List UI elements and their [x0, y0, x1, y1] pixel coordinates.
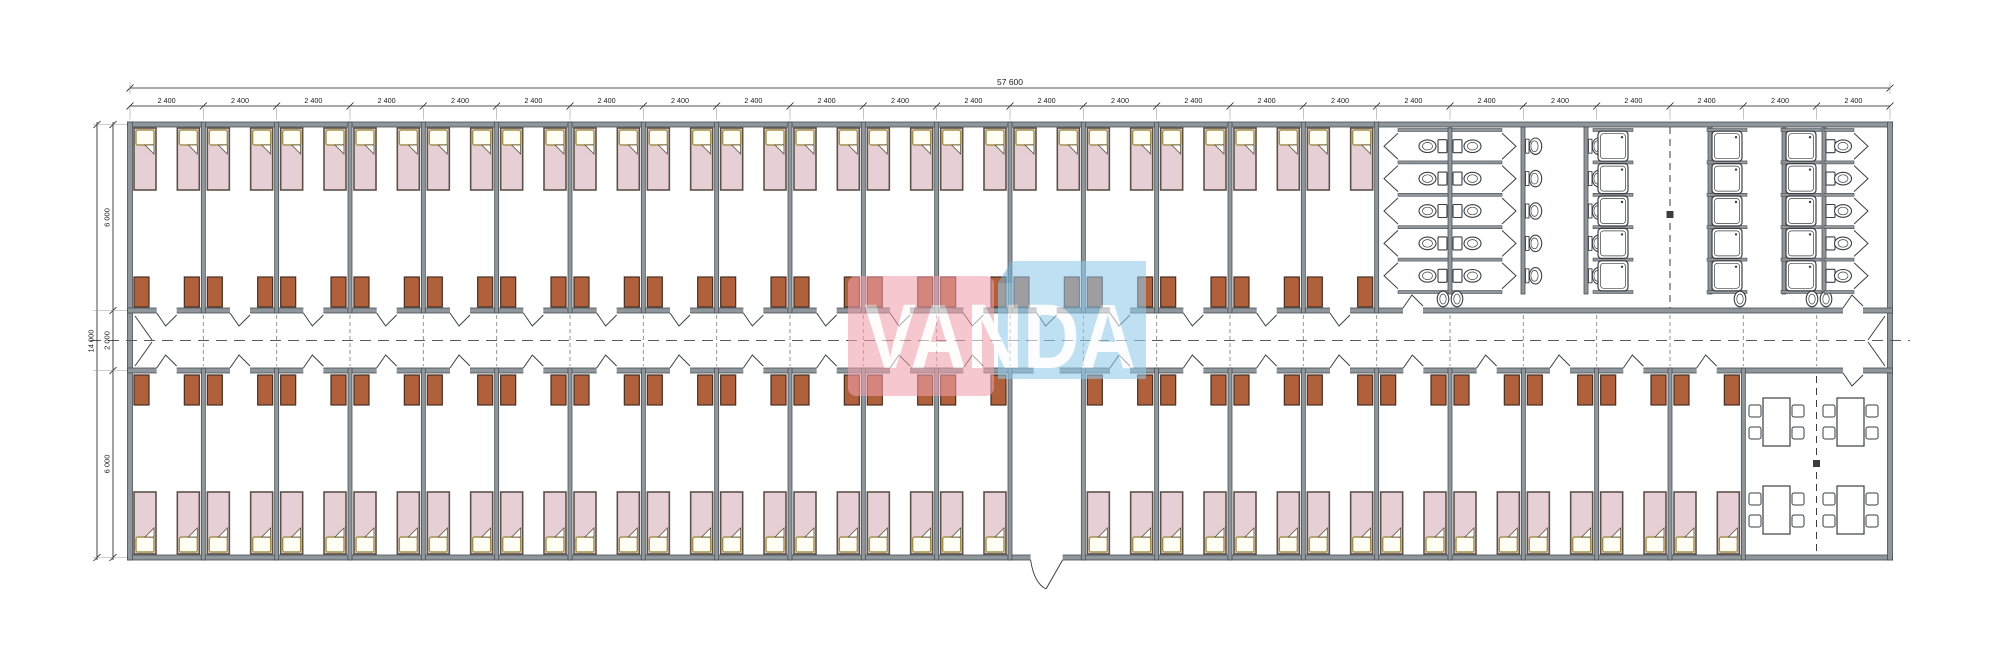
- door-opening: [1550, 368, 1570, 374]
- dimension-label: 2 400: [1038, 96, 1056, 105]
- wardrobe: [281, 375, 296, 405]
- wardrobe: [794, 277, 809, 307]
- bed: [134, 492, 156, 554]
- bed: [1381, 492, 1403, 554]
- wall: [201, 122, 205, 313]
- bed: [794, 492, 816, 554]
- wall: [1668, 368, 1672, 560]
- bed: [281, 492, 303, 554]
- bed: [354, 492, 376, 554]
- door-leaf: [1403, 295, 1423, 308]
- wardrobe: [1161, 277, 1176, 307]
- door-opening: [1183, 368, 1203, 374]
- entrance-door-leaf: [1046, 560, 1063, 589]
- entrance-opening: [1031, 555, 1063, 561]
- wall: [1822, 127, 1826, 294]
- bed: [1131, 128, 1153, 190]
- door-opening: [1843, 368, 1863, 374]
- table: [1837, 486, 1864, 534]
- right-toilet-column: [1824, 129, 1868, 294]
- bed: [1717, 492, 1739, 554]
- wardrobe: [184, 277, 199, 307]
- bed: [617, 128, 639, 190]
- bed: [177, 128, 199, 190]
- wardrobe: [647, 375, 662, 405]
- dimension-label: 2 400: [964, 96, 982, 105]
- bed: [1087, 128, 1109, 190]
- door-leaf: [1550, 355, 1570, 368]
- wardrobe: [354, 277, 369, 307]
- bed: [647, 128, 669, 190]
- door-opening: [157, 368, 177, 374]
- wardrobe: [1307, 375, 1322, 405]
- bed: [794, 128, 816, 190]
- dimension-label: 2 400: [1111, 96, 1129, 105]
- chair: [1823, 515, 1835, 527]
- door-leaf: [1868, 316, 1885, 340]
- door-opening: [670, 368, 690, 374]
- wardrobe: [647, 277, 662, 307]
- bed: [691, 492, 713, 554]
- bed: [1087, 492, 1109, 554]
- bed: [281, 128, 303, 190]
- bed: [1277, 492, 1299, 554]
- bed: [1277, 128, 1299, 190]
- bed: [1351, 492, 1373, 554]
- door-leaf: [303, 355, 323, 368]
- chair: [1823, 493, 1835, 505]
- table: [1837, 398, 1864, 446]
- watermark-text: VANDA: [864, 286, 1136, 388]
- wall: [421, 122, 425, 313]
- bed: [324, 128, 346, 190]
- wardrobe: [331, 277, 346, 307]
- wall: [1375, 122, 1379, 313]
- wardrobe: [258, 375, 273, 405]
- chair: [1866, 427, 1878, 439]
- wardrobe: [207, 277, 222, 307]
- dimension-label: 2 400: [891, 96, 909, 105]
- section-marker: [1813, 460, 1820, 467]
- dimension-label: 14 000: [87, 330, 96, 353]
- wardrobe: [1358, 277, 1373, 307]
- wardrobe: [1724, 375, 1739, 405]
- door-leaf: [1183, 313, 1203, 326]
- bed: [207, 128, 229, 190]
- wall: [1448, 128, 1452, 294]
- door-leaf: [1330, 355, 1350, 368]
- floor-plan-svg: 57 6002 4002 4002 4002 4002 4002 4002 40…: [0, 0, 2000, 654]
- wall: [421, 368, 425, 560]
- dimension-label: 2 400: [1698, 96, 1716, 105]
- wall: [1741, 368, 1745, 560]
- wardrobe: [404, 375, 419, 405]
- wardrobe: [354, 375, 369, 405]
- door-leaf: [157, 313, 177, 326]
- dimension-label: 2 400: [158, 96, 176, 105]
- door-opening: [597, 368, 617, 374]
- wall: [1155, 122, 1159, 313]
- door-opening: [303, 308, 323, 314]
- bed: [1497, 492, 1519, 554]
- dining-table-group: [1823, 486, 1878, 534]
- bed: [1234, 492, 1256, 554]
- chair: [1792, 493, 1804, 505]
- dimension-label: 2 400: [1624, 96, 1642, 105]
- door-opening: [1330, 308, 1350, 314]
- bed: [1204, 492, 1226, 554]
- door-leaf: [1697, 355, 1717, 368]
- door-leaf: [303, 313, 323, 326]
- chair: [1823, 405, 1835, 417]
- bed: [1204, 128, 1226, 190]
- entrance-door-swing: [1031, 560, 1046, 589]
- wardrobe: [1234, 375, 1249, 405]
- dining-table-group: [1749, 486, 1804, 534]
- chair: [1792, 405, 1804, 417]
- chair: [1792, 427, 1804, 439]
- bed: [1307, 492, 1329, 554]
- wardrobe: [207, 375, 222, 405]
- door-opening: [523, 368, 543, 374]
- floor-plan-canvas: 57 6002 4002 4002 4002 4002 4002 4002 40…: [0, 0, 2000, 654]
- wardrobe: [574, 375, 589, 405]
- door-leaf: [670, 355, 690, 368]
- wardrobe: [1358, 375, 1373, 405]
- door-leaf: [743, 355, 763, 368]
- bed: [721, 492, 743, 554]
- dimension-label: 2 400: [524, 96, 542, 105]
- wall: [495, 368, 499, 560]
- wardrobe: [551, 277, 566, 307]
- dimension-label: 2 400: [1844, 96, 1862, 105]
- door-opening: [1623, 368, 1643, 374]
- wardrobe: [184, 375, 199, 405]
- door-leaf: [743, 313, 763, 326]
- bed: [1307, 128, 1329, 190]
- wall: [935, 368, 939, 560]
- wardrobe: [698, 375, 713, 405]
- door-opening: [1403, 308, 1423, 314]
- door-opening: [157, 308, 177, 314]
- dining-table-group: [1823, 398, 1878, 446]
- dimension-label: 2 400: [1478, 96, 1496, 105]
- wall: [788, 368, 792, 560]
- door-opening: [377, 368, 397, 374]
- door-opening: [1403, 368, 1423, 374]
- wall: [1228, 122, 1232, 313]
- bed: [177, 492, 199, 554]
- wardrobe: [404, 277, 419, 307]
- wall: [495, 122, 499, 313]
- bed: [207, 492, 229, 554]
- bed: [544, 492, 566, 554]
- washbasin-columns: [1526, 138, 1605, 284]
- wardrobe: [427, 277, 442, 307]
- door-leaf: [1257, 313, 1277, 326]
- shower-column: [1781, 129, 1821, 294]
- bed: [574, 128, 596, 190]
- wall: [641, 122, 645, 313]
- wall: [201, 368, 205, 560]
- door-opening: [450, 308, 470, 314]
- bed: [1527, 492, 1549, 554]
- dimension-label: 2 400: [671, 96, 689, 105]
- wardrobe: [551, 375, 566, 405]
- bed: [471, 128, 493, 190]
- wall: [1448, 368, 1452, 560]
- wardrobe: [1527, 375, 1542, 405]
- wardrobe: [1601, 375, 1616, 405]
- door-leaf: [1843, 295, 1863, 308]
- chair: [1749, 405, 1761, 417]
- dimension-label: 2 400: [744, 96, 762, 105]
- bed: [984, 128, 1006, 190]
- dimension-label: 2 400: [1771, 96, 1789, 105]
- bed: [1234, 128, 1256, 190]
- door-leaf: [230, 313, 250, 326]
- bed: [1161, 492, 1183, 554]
- bed: [427, 128, 449, 190]
- dimension-label: 6 000: [103, 455, 112, 474]
- wardrobe: [1161, 375, 1176, 405]
- bed: [941, 128, 963, 190]
- chair: [1749, 515, 1761, 527]
- wardrobe: [624, 375, 639, 405]
- bed: [1454, 492, 1476, 554]
- door-opening: [597, 308, 617, 314]
- wardrobe: [134, 375, 149, 405]
- chair: [1749, 427, 1761, 439]
- door-leaf: [597, 355, 617, 368]
- wall: [348, 368, 352, 560]
- dimension-label: 2 400: [1258, 96, 1276, 105]
- wall: [1155, 368, 1159, 560]
- dimension-label: 6 000: [103, 208, 112, 227]
- bed: [1014, 128, 1036, 190]
- dimension-label: 2 400: [378, 96, 396, 105]
- dimension-label: 2 400: [818, 96, 836, 105]
- section-marker: [1667, 211, 1674, 218]
- dining-table-group: [1749, 398, 1804, 446]
- door-leaf: [1183, 355, 1203, 368]
- wardrobe: [134, 277, 149, 307]
- door-opening: [230, 368, 250, 374]
- bed: [1424, 492, 1446, 554]
- dimension-label: 2 400: [451, 96, 469, 105]
- bed: [501, 492, 523, 554]
- wardrobe: [1307, 277, 1322, 307]
- bed: [1571, 492, 1593, 554]
- wardrobe: [721, 277, 736, 307]
- door-opening: [1697, 368, 1717, 374]
- wall: [1301, 122, 1305, 313]
- wall: [788, 122, 792, 313]
- door-leaf: [230, 355, 250, 368]
- chair: [1866, 515, 1878, 527]
- wardrobe: [1504, 375, 1519, 405]
- bed: [617, 492, 639, 554]
- door-opening: [743, 368, 763, 374]
- wardrobe: [574, 277, 589, 307]
- dimension-label: 2 400: [1184, 96, 1202, 105]
- bed: [354, 128, 376, 190]
- dimension-label: 2 400: [1551, 96, 1569, 105]
- door-leaf: [377, 355, 397, 368]
- bed: [544, 128, 566, 190]
- wardrobe: [794, 375, 809, 405]
- wall: [641, 368, 645, 560]
- wall: [861, 368, 865, 560]
- door-leaf: [157, 355, 177, 368]
- wall: [275, 368, 279, 560]
- wall: [715, 122, 719, 313]
- door-opening: [377, 308, 397, 314]
- door-leaf: [1477, 355, 1497, 368]
- wall: [1301, 368, 1305, 560]
- bed: [397, 128, 419, 190]
- door-opening: [1330, 368, 1350, 374]
- bed: [984, 492, 1006, 554]
- bed: [251, 492, 273, 554]
- shower-column: [1707, 129, 1747, 294]
- dimension-label: 2 400: [1404, 96, 1422, 105]
- door-opening: [303, 368, 323, 374]
- wall: [1584, 127, 1588, 294]
- bed: [837, 492, 859, 554]
- wardrobe: [501, 375, 516, 405]
- bed: [764, 492, 786, 554]
- dimension-label: 2 000: [103, 331, 112, 350]
- wall: [348, 122, 352, 313]
- door-opening: [817, 368, 837, 374]
- bed: [721, 128, 743, 190]
- bed: [911, 492, 933, 554]
- chair: [1749, 493, 1761, 505]
- door-opening: [743, 308, 763, 314]
- table: [1763, 486, 1790, 534]
- bed: [134, 128, 156, 190]
- wardrobe: [624, 277, 639, 307]
- wardrobe: [1431, 375, 1446, 405]
- chair: [1792, 515, 1804, 527]
- door-leaf: [523, 355, 543, 368]
- bed: [941, 492, 963, 554]
- bed: [471, 492, 493, 554]
- dimension-label: 2 400: [598, 96, 616, 105]
- wardrobe: [1284, 375, 1299, 405]
- table: [1763, 398, 1790, 446]
- door-opening: [1257, 368, 1277, 374]
- door-leaf: [523, 313, 543, 326]
- bed: [1601, 492, 1623, 554]
- door-leaf: [377, 313, 397, 326]
- bed: [427, 492, 449, 554]
- door-opening: [817, 308, 837, 314]
- bed: [867, 128, 889, 190]
- bed: [764, 128, 786, 190]
- door-leaf: [135, 342, 152, 366]
- door-leaf: [1257, 355, 1277, 368]
- wall: [1008, 368, 1012, 560]
- wall: [1521, 368, 1525, 560]
- door-opening: [1843, 308, 1863, 314]
- bed: [647, 492, 669, 554]
- dimension-label: 2 400: [231, 96, 249, 105]
- wardrobe: [1284, 277, 1299, 307]
- wardrobe: [258, 277, 273, 307]
- wall: [568, 122, 572, 313]
- bed: [691, 128, 713, 190]
- bed: [574, 492, 596, 554]
- bed: [1161, 128, 1183, 190]
- wardrobe: [1454, 375, 1469, 405]
- wardrobe: [1234, 277, 1249, 307]
- bed: [501, 128, 523, 190]
- door-leaf: [597, 313, 617, 326]
- wardrobe: [721, 375, 736, 405]
- bed: [867, 492, 889, 554]
- wardrobe: [331, 375, 346, 405]
- dimension-label: 2 400: [1331, 96, 1349, 105]
- bed: [837, 128, 859, 190]
- wardrobe: [771, 277, 786, 307]
- door-leaf: [1868, 342, 1885, 366]
- door-leaf: [135, 316, 152, 340]
- door-leaf: [1843, 373, 1863, 386]
- chair: [1866, 493, 1878, 505]
- wall: [1081, 368, 1085, 560]
- door-leaf: [1330, 313, 1350, 326]
- bed: [911, 128, 933, 190]
- door-opening: [230, 308, 250, 314]
- door-leaf: [817, 313, 837, 326]
- wall: [1521, 127, 1525, 294]
- wardrobe: [698, 277, 713, 307]
- bed: [397, 492, 419, 554]
- door-leaf: [670, 313, 690, 326]
- bed: [251, 128, 273, 190]
- door-opening: [450, 368, 470, 374]
- door-leaf: [1623, 355, 1643, 368]
- wardrobe: [1211, 375, 1226, 405]
- door-leaf: [450, 313, 470, 326]
- bed: [1131, 492, 1153, 554]
- door-leaf: [1403, 355, 1423, 368]
- wardrobe: [281, 277, 296, 307]
- bed: [1674, 492, 1696, 554]
- sanitary-fixtures-layer: [1384, 129, 1878, 535]
- wall: [715, 368, 719, 560]
- chair: [1823, 427, 1835, 439]
- wardrobe: [501, 277, 516, 307]
- wardrobe: [1578, 375, 1593, 405]
- dimension-label: 2 400: [304, 96, 322, 105]
- wall: [1375, 368, 1379, 560]
- wardrobe: [427, 375, 442, 405]
- wall: [1228, 368, 1232, 560]
- wardrobe: [1138, 375, 1153, 405]
- bed: [1057, 128, 1079, 190]
- door-opening: [1257, 308, 1277, 314]
- bed: [1644, 492, 1666, 554]
- door-opening: [523, 308, 543, 314]
- shower-column: [1593, 129, 1633, 294]
- wall: [568, 368, 572, 560]
- wardrobe: [1674, 375, 1689, 405]
- chair: [1866, 405, 1878, 417]
- dimension-label: 57 600: [997, 77, 1023, 87]
